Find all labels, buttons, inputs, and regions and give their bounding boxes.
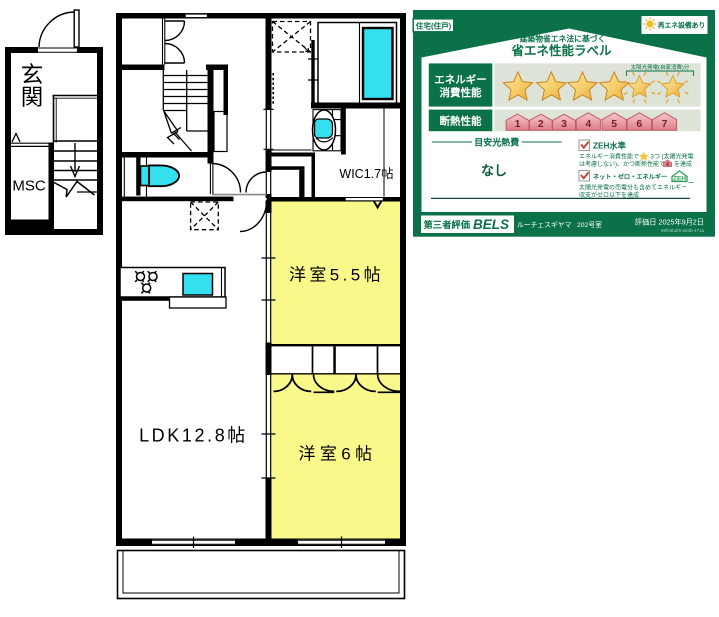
svg-text:MSC: MSC bbox=[12, 178, 46, 195]
svg-text:太陽光発電(自家消費)分: 太陽光発電(自家消費)分 bbox=[631, 63, 690, 71]
svg-text:202号室: 202号室 bbox=[577, 220, 602, 229]
svg-text:断熱性能: 断熱性能 bbox=[440, 115, 482, 128]
svg-text:目安光熱費: 目安光熱費 bbox=[474, 136, 519, 147]
svg-text:は考慮しない)、かつ断熱性能で: は考慮しない)、かつ断熱性能で bbox=[579, 160, 665, 168]
svg-text:2: 2 bbox=[538, 118, 544, 130]
svg-text:収支がゼロ以下を達成: 収支がゼロ以下を達成 bbox=[579, 191, 639, 199]
svg-text:エネルギー消費性能で: エネルギー消費性能で bbox=[579, 152, 639, 160]
svg-text:評価日 2025年9月2日: 評価日 2025年9月2日 bbox=[635, 218, 704, 227]
svg-text:6: 6 bbox=[636, 118, 642, 130]
svg-text:4: 4 bbox=[585, 118, 591, 130]
svg-text:1: 1 bbox=[515, 118, 521, 130]
svg-text:WIC1.7帖: WIC1.7帖 bbox=[339, 166, 393, 181]
svg-text:第三者評価: 第三者評価 bbox=[424, 219, 471, 230]
svg-text:を達成: を達成 bbox=[674, 160, 692, 168]
svg-text:洋室6帖: 洋室6帖 bbox=[298, 445, 376, 464]
svg-text:ZEH: ZEH bbox=[673, 176, 686, 183]
svg-text:7: 7 bbox=[662, 118, 668, 130]
svg-text:住宅(住戸): 住宅(住戸) bbox=[416, 20, 452, 30]
svg-text:なし: なし bbox=[481, 163, 507, 178]
svg-text:太陽光発電の売電分も含めてエネルギー: 太陽光発電の売電分も含めてエネルギー bbox=[579, 183, 687, 191]
svg-text:3: 3 bbox=[561, 118, 567, 130]
svg-text:エネルギー: エネルギー bbox=[434, 73, 487, 86]
svg-text:洋室5.5帖: 洋室5.5帖 bbox=[289, 266, 384, 285]
svg-text:ネット・ゼロ・エネルギー: ネット・ゼロ・エネルギー bbox=[593, 173, 667, 181]
svg-text:ルーチェスギヤマ: ルーチェスギヤマ bbox=[517, 221, 572, 229]
svg-text:関: 関 bbox=[21, 85, 44, 110]
svg-text:4: 4 bbox=[666, 162, 669, 168]
svg-text:省エネ性能ラベル: 省エネ性能ラベル bbox=[510, 43, 612, 58]
svg-text:再エネ設備あり: 再エネ設備あり bbox=[658, 20, 706, 29]
svg-text:ZEH水準: ZEH水準 bbox=[593, 140, 626, 150]
svg-text:BELS: BELS bbox=[473, 217, 509, 232]
svg-text:69f03bdf8-a53b-471a: 69f03bdf8-a53b-471a bbox=[661, 228, 705, 233]
svg-text:建築物省エネ法に基づく: 建築物省エネ法に基づく bbox=[519, 34, 606, 44]
svg-text:3つ (太陽光発電: 3つ (太陽光発電 bbox=[651, 152, 694, 160]
svg-text:玄: 玄 bbox=[21, 63, 44, 88]
svg-text:消費性能: 消費性能 bbox=[440, 86, 482, 99]
svg-text:5: 5 bbox=[611, 118, 617, 130]
svg-text:LDK12.8帖: LDK12.8帖 bbox=[139, 426, 248, 446]
